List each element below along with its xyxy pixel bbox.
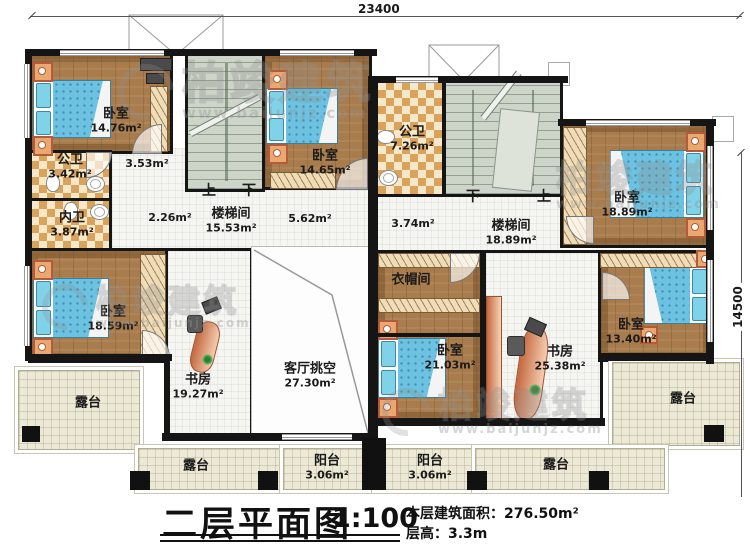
bed xyxy=(33,80,111,138)
wall xyxy=(25,354,172,361)
window xyxy=(282,434,352,440)
nightstand xyxy=(33,260,53,280)
nightstand xyxy=(268,144,288,164)
sink-icon xyxy=(86,176,105,192)
window xyxy=(707,146,713,230)
wardrobe xyxy=(270,172,336,189)
nightstand xyxy=(378,320,398,340)
room-living-void xyxy=(250,245,375,437)
window xyxy=(24,266,30,346)
nightstand xyxy=(33,62,53,82)
plant-icon xyxy=(529,384,541,396)
title-underline xyxy=(160,534,400,542)
bed xyxy=(378,338,446,398)
stair-down-label: 下 xyxy=(466,186,480,206)
nightstand xyxy=(640,326,658,344)
nightstand xyxy=(686,132,706,152)
right-dimension-label: 14500 xyxy=(731,283,745,331)
top-dimension-line xyxy=(30,16,742,17)
window xyxy=(280,50,354,56)
toilet-icon xyxy=(46,174,60,192)
column-post xyxy=(704,425,724,442)
wall xyxy=(368,76,378,438)
tv-console xyxy=(140,58,172,71)
office-chair xyxy=(507,336,525,356)
terrace-bottom-right xyxy=(475,448,665,490)
counter xyxy=(486,296,502,424)
column-post xyxy=(467,471,487,490)
window xyxy=(60,50,164,56)
wardrobe xyxy=(600,253,698,268)
balcony-right xyxy=(375,448,475,490)
window xyxy=(24,64,30,138)
column-post xyxy=(258,471,278,490)
wall xyxy=(375,418,605,426)
device xyxy=(146,73,164,84)
sink-icon xyxy=(379,170,398,186)
floor-height-info: 层高：3.3m xyxy=(406,523,487,543)
bed xyxy=(610,150,704,218)
wall xyxy=(162,433,254,441)
column-post xyxy=(589,471,609,490)
top-dimension-label: 23400 xyxy=(355,2,403,16)
wall xyxy=(598,353,714,361)
stair-down-label: 下 xyxy=(242,180,256,200)
column-post xyxy=(362,438,386,490)
toilet-icon xyxy=(377,130,395,144)
stair-up-label: 上 xyxy=(202,180,216,200)
bed xyxy=(266,88,338,144)
column-post xyxy=(130,471,150,490)
bed xyxy=(644,266,710,324)
office-chair xyxy=(187,315,203,333)
sink-icon xyxy=(90,204,109,220)
stair-up-label: 上 xyxy=(537,186,551,206)
window xyxy=(586,120,690,126)
closet-wardrobe xyxy=(378,298,480,313)
stair-landing xyxy=(492,108,540,192)
column-post xyxy=(22,426,40,442)
wall xyxy=(164,361,170,437)
floor-plan-canvas: 23400 14500 xyxy=(0,0,750,547)
nightstand xyxy=(686,218,706,238)
window xyxy=(707,260,713,342)
plant-icon xyxy=(202,354,213,365)
nightstand xyxy=(378,398,398,418)
floor-area-info: 本层建筑面积：276.50m² xyxy=(406,503,579,523)
nightstand xyxy=(33,136,53,156)
room-stairwell-left xyxy=(185,52,265,192)
bed xyxy=(33,278,109,338)
nightstand xyxy=(268,70,288,90)
wall xyxy=(375,333,483,337)
toilet-icon xyxy=(64,202,78,220)
window xyxy=(396,77,438,83)
